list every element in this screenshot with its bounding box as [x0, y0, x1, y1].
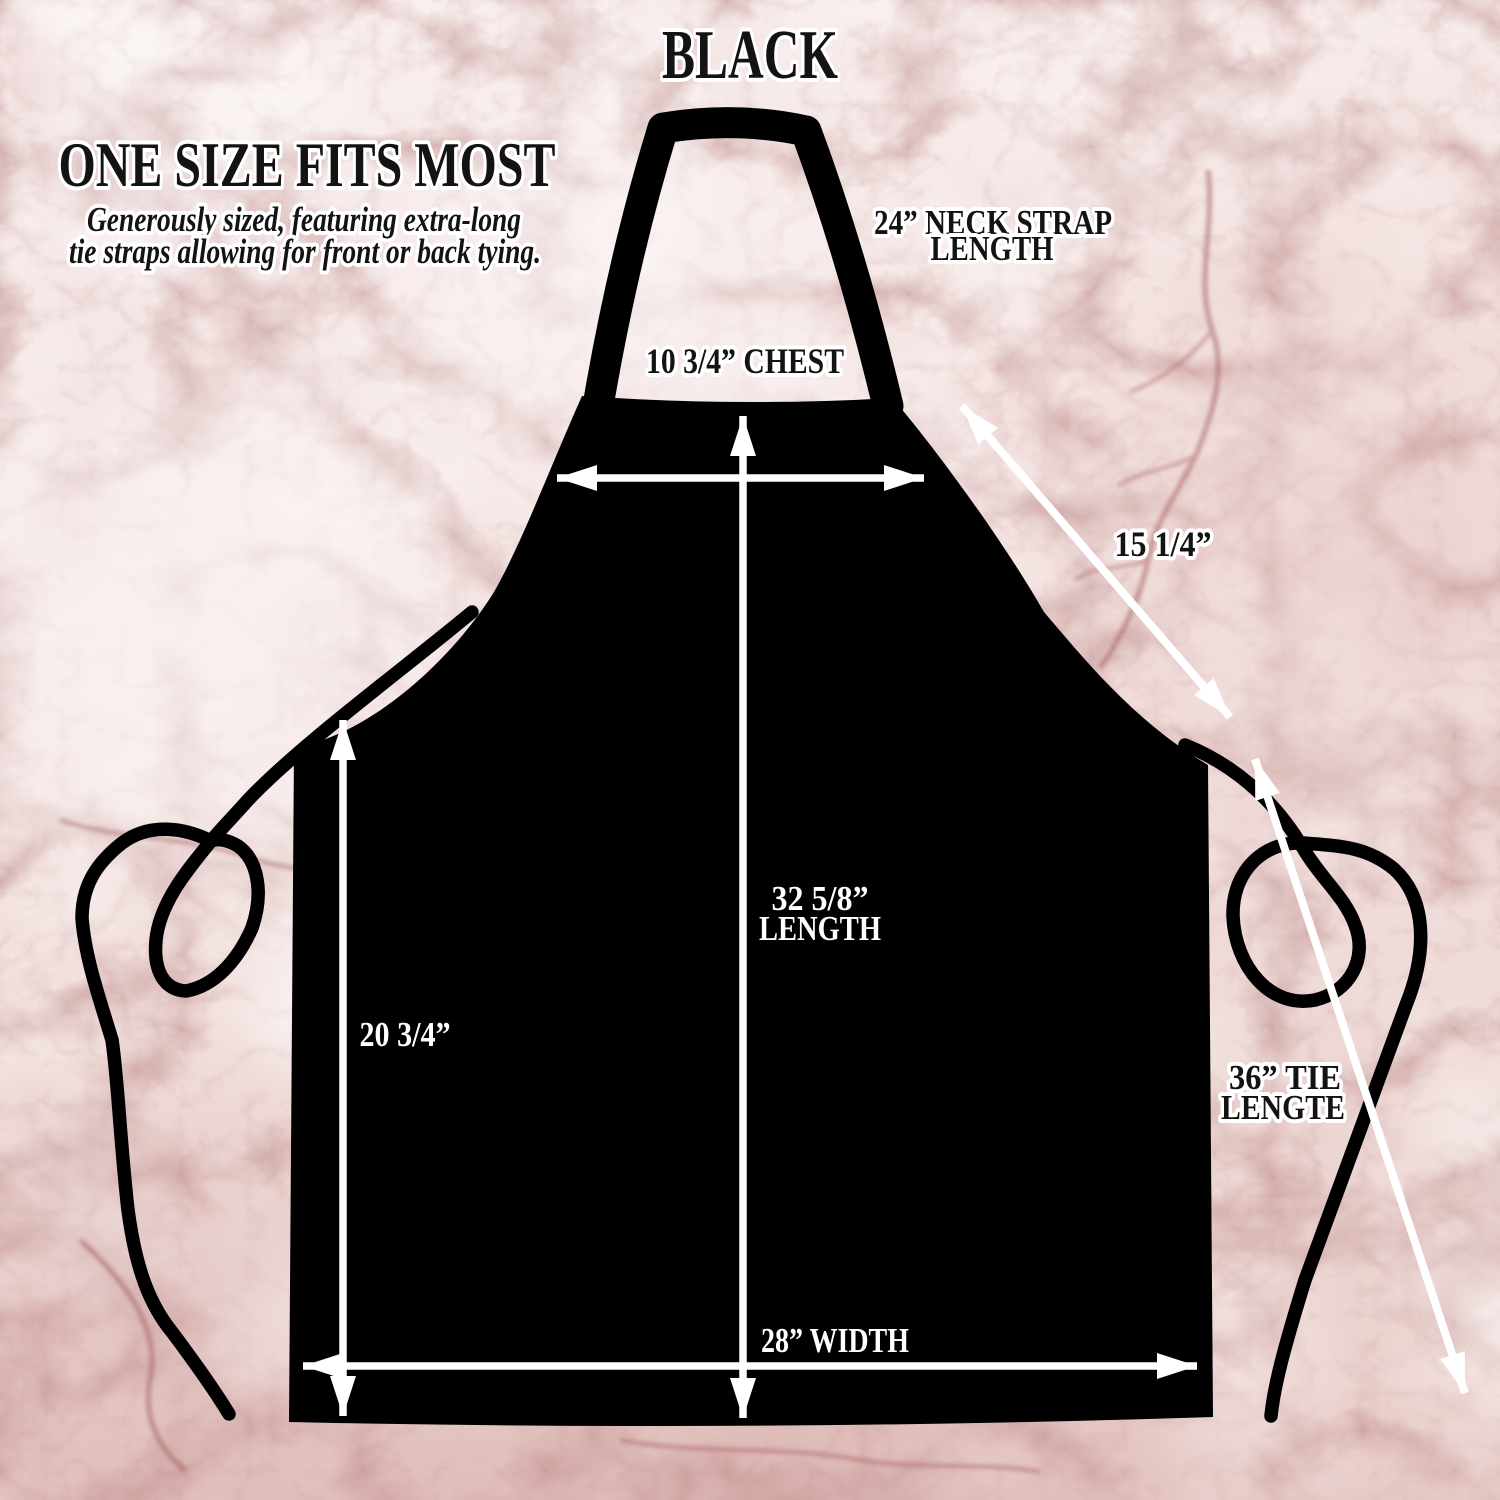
svg-text:28” WIDTH: 28” WIDTH — [761, 1321, 909, 1360]
svg-text:BLACK: BLACK — [662, 17, 838, 94]
svg-text:tie straps allowing for front: tie straps allowing for front or back ty… — [69, 232, 541, 271]
svg-text:10 3/4” CHEST: 10 3/4” CHEST — [646, 341, 844, 381]
svg-text:LENGTE: LENGTE — [1221, 1088, 1345, 1127]
svg-text:LENGTH: LENGTH — [931, 229, 1054, 268]
svg-text:LENGTH: LENGTH — [759, 909, 881, 948]
svg-text:15 1/4”: 15 1/4” — [1115, 524, 1212, 564]
svg-text:20 3/4”: 20 3/4” — [360, 1015, 451, 1054]
svg-text:ONE SIZE FITS MOST: ONE SIZE FITS MOST — [59, 129, 556, 200]
